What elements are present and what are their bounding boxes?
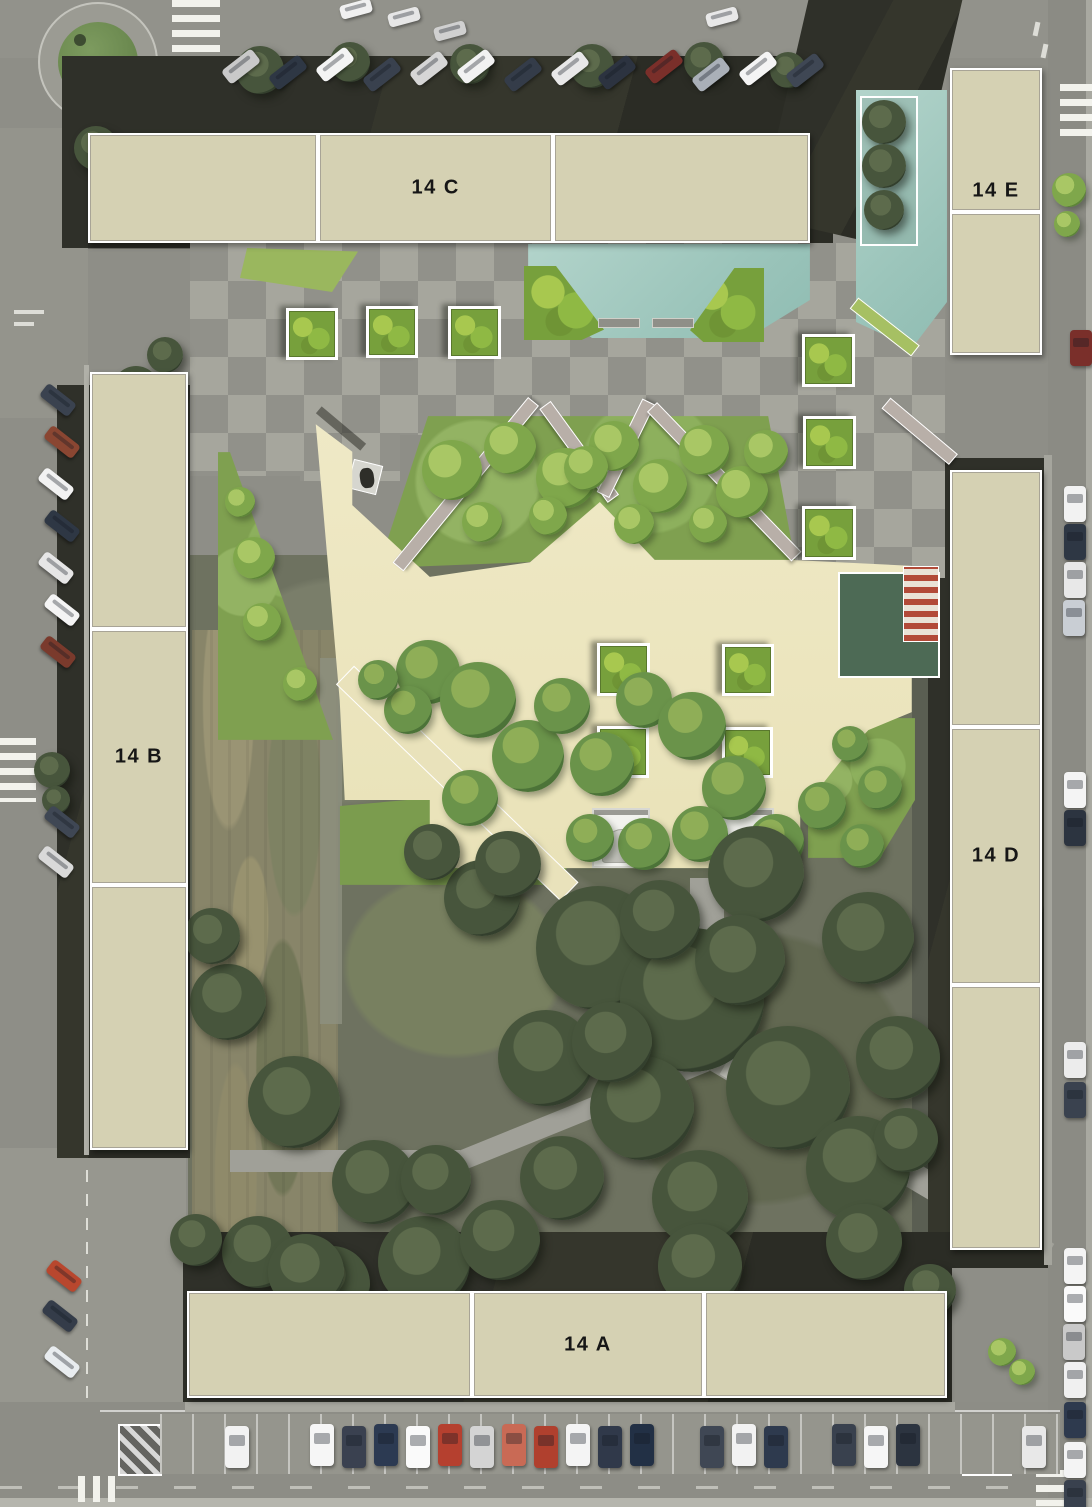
site-plan-canvas: 14 C14 E14 B14 D14 A (0, 0, 1092, 1507)
tree-bright (716, 466, 768, 518)
square-planter (366, 306, 418, 358)
tree-dark (184, 908, 240, 964)
tree-medium (618, 818, 670, 870)
tree-bright (988, 1338, 1016, 1366)
crosswalk (172, 0, 220, 52)
tree-bright (225, 487, 255, 517)
building-label-14E: 14 E (972, 180, 1019, 203)
building-segment (187, 1291, 472, 1398)
sidewalk-east (1044, 455, 1052, 1265)
parked-car (1064, 562, 1086, 598)
tree-dark (475, 831, 541, 897)
parked-car (1064, 1248, 1086, 1284)
bottom-lane-dashes (0, 1486, 1092, 1489)
tree-dark (862, 144, 906, 188)
crosswalk (0, 738, 36, 802)
tree-dark (826, 1204, 902, 1280)
road-mark (14, 322, 34, 326)
parked-car (630, 1424, 654, 1466)
parked-car (1063, 600, 1085, 636)
tree-bright (529, 497, 567, 535)
tree-dark (34, 752, 70, 788)
parked-car (1064, 524, 1086, 560)
building-segment (90, 885, 188, 1150)
tree-dark (856, 1016, 940, 1100)
tree-bright (1054, 211, 1080, 237)
tree-medium (840, 824, 884, 868)
tree-dark (248, 1056, 340, 1148)
tree-medium (440, 662, 516, 738)
tree-medium (358, 660, 398, 700)
tree-bright (614, 504, 654, 544)
tree-dark (404, 824, 460, 880)
tree-dark (822, 892, 914, 984)
tree-bright (679, 425, 729, 475)
square-planter (286, 308, 338, 360)
parked-car (732, 1424, 756, 1466)
tree-dark (460, 1200, 540, 1280)
tree-dark (695, 915, 785, 1005)
parked-car (1064, 486, 1086, 522)
tree-medium (658, 692, 726, 760)
building-segment (950, 470, 1042, 727)
tree-dark (572, 1002, 652, 1082)
building-segment (90, 372, 188, 629)
crosswalk (1060, 84, 1092, 138)
parked-car (864, 1426, 888, 1468)
tree-bright (484, 422, 536, 474)
parked-car (1064, 1042, 1086, 1078)
square-planter (722, 644, 774, 696)
roundabout-bush (74, 34, 86, 46)
tree-dark (170, 1214, 222, 1266)
square-planter (803, 416, 856, 469)
tree-dark (520, 1136, 604, 1220)
parked-car (1022, 1426, 1046, 1468)
building-label-14B: 14 B (115, 746, 163, 769)
parked-car (342, 1426, 366, 1468)
right-street-edge (1086, 0, 1092, 1507)
parked-car (1064, 1442, 1086, 1478)
parked-car (374, 1424, 398, 1466)
tree-bright (422, 440, 482, 500)
parked-car (1064, 772, 1086, 808)
square-planter (448, 306, 501, 359)
tree-medium (832, 726, 868, 762)
tree-bright (564, 446, 608, 490)
building-segment (950, 985, 1042, 1250)
building-label-14A: 14 A (564, 1333, 612, 1356)
square-planter (802, 334, 855, 387)
tree-bright (689, 505, 727, 543)
parked-car (1064, 810, 1086, 846)
bottom-left-parking-lot (0, 1148, 186, 1430)
parked-car (598, 1426, 622, 1468)
tree-dark (190, 964, 266, 1040)
parked-car (1070, 330, 1092, 366)
tree-medium (534, 678, 590, 734)
parked-car (1064, 1286, 1086, 1322)
parked-car (1064, 1362, 1086, 1398)
tree-dark (864, 190, 904, 230)
tree-bright (1052, 173, 1086, 207)
building-label-14D: 14 D (972, 845, 1020, 868)
parked-car (1064, 1402, 1086, 1438)
parked-car (764, 1426, 788, 1468)
tree-medium (566, 814, 614, 862)
parked-car (502, 1424, 526, 1466)
tree-dark (862, 100, 906, 144)
tree-dark (708, 826, 804, 922)
parked-car (470, 1426, 494, 1468)
parked-car (832, 1424, 856, 1466)
tree-dark (874, 1108, 938, 1172)
striped-awning (903, 566, 939, 642)
tree-dark (147, 337, 183, 373)
tree-bright (1009, 1359, 1035, 1385)
parked-car (700, 1426, 724, 1468)
building-block-14E (950, 68, 1042, 355)
building-segment (553, 133, 810, 243)
bottom-photo-edge (0, 1498, 1092, 1507)
tree-bright (744, 430, 788, 474)
sidewalk-south (185, 1402, 955, 1412)
parked-car (310, 1424, 334, 1466)
parked-car (1064, 1082, 1086, 1118)
building-segment (88, 133, 318, 243)
tree-medium (570, 732, 634, 796)
parked-car (225, 1426, 249, 1468)
parked-car (896, 1424, 920, 1466)
parked-car (406, 1426, 430, 1468)
tree-medium (858, 766, 902, 810)
square-planter (802, 506, 856, 560)
tree-bright (243, 603, 281, 641)
sidewalk-west (84, 365, 89, 1155)
tree-dark (401, 1145, 471, 1215)
crosswalk (78, 1476, 116, 1502)
tree-medium (442, 770, 498, 826)
bench (598, 318, 640, 328)
tree-bright (462, 502, 502, 542)
marked-parking-bay (118, 1424, 162, 1476)
parked-car (438, 1424, 462, 1466)
crosswalk (1036, 1470, 1066, 1506)
bench (652, 318, 694, 328)
building-segment (950, 212, 1042, 356)
parked-car (1063, 1324, 1085, 1360)
tree-bright (283, 667, 317, 701)
parked-car (566, 1424, 590, 1466)
tree-medium (798, 782, 846, 830)
tree-dark (620, 880, 700, 960)
lot-bay-line (86, 1170, 88, 1400)
tree-bright (233, 537, 275, 579)
parked-car (1064, 1480, 1086, 1507)
building-segment (704, 1291, 947, 1398)
parked-car (534, 1426, 558, 1468)
building-label-14C: 14 C (412, 177, 460, 200)
road-mark (14, 310, 44, 314)
